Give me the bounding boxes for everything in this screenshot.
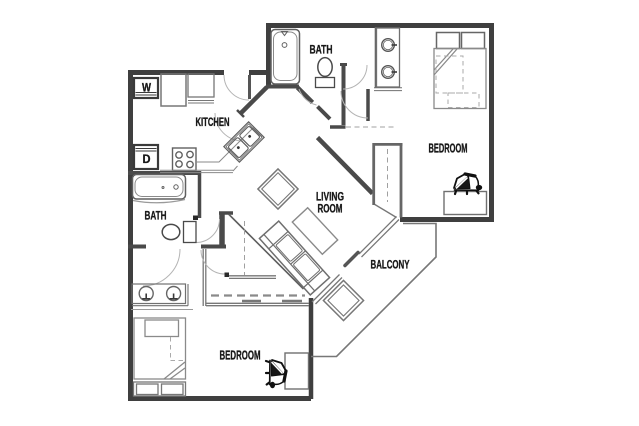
svg-text:LIVING: LIVING xyxy=(316,192,344,204)
svg-text:BATH: BATH xyxy=(310,43,333,57)
svg-text:KITCHEN: KITCHEN xyxy=(196,117,230,129)
svg-text:BEDROOM: BEDROOM xyxy=(220,349,261,363)
svg-text:BATH: BATH xyxy=(145,209,167,223)
svg-text:BEDROOM: BEDROOM xyxy=(429,142,468,156)
svg-text:W: W xyxy=(142,81,152,95)
svg-text:D: D xyxy=(143,152,151,166)
svg-text:BALCONY: BALCONY xyxy=(371,258,410,272)
svg-text:ROOM: ROOM xyxy=(318,204,343,216)
